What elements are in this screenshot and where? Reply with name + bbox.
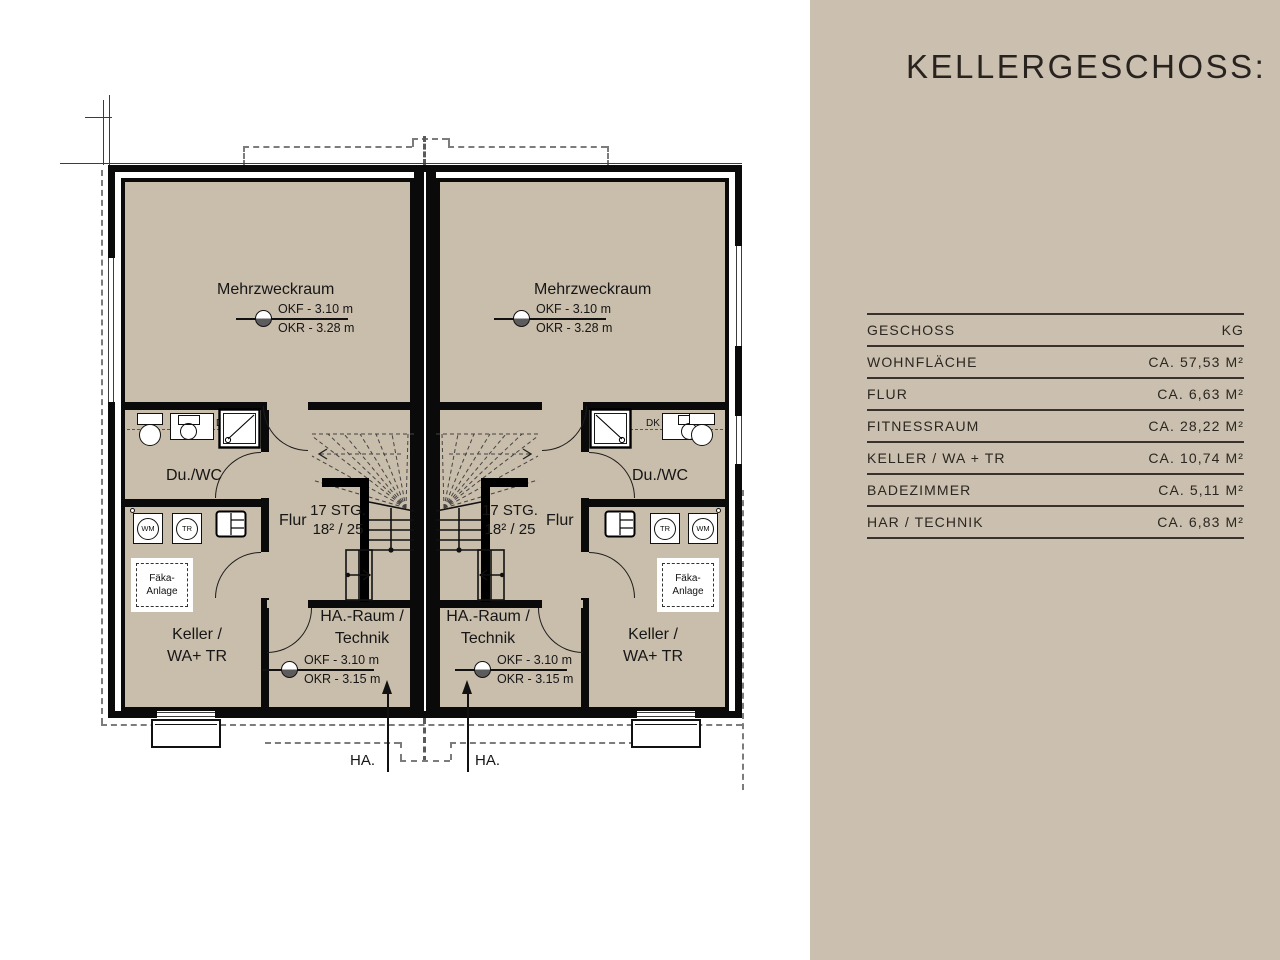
shower-icon-right [589,408,632,449]
sink-icon-left [170,413,214,440]
level-marker-lower-left: OKF - 3.10 m OKR - 3.15 m [262,652,382,692]
table-header-label: GESCHOSS [867,322,955,338]
stair-projection-notch-l [400,742,402,760]
label-haraum-right: HA.-Raum /Technik [428,606,548,649]
floor-plan: DK DK WM TR [0,0,810,960]
label-duwc-right: Du./WC [632,466,688,486]
table-header-row: GESCHOSS KG [867,315,1244,347]
level-marker-lower-right: OKF - 3.10 m OKR - 3.15 m [455,652,575,692]
stair-projection-notch-base [400,760,450,762]
dk-label-right: DK [646,418,660,431]
ha-label-right: HA. [475,752,500,771]
degree-mark-left [130,508,135,513]
table-row: HAR / TECHNIK CA. 6,83 M² [867,507,1244,539]
downpipe-mark-a [103,100,104,165]
level-marker-icon [255,310,272,327]
label-flur-right: Flur [546,511,574,531]
reference-line-top [60,163,742,164]
overhang-dashed-top-b [448,146,607,148]
toilet-bowl-right [691,424,713,446]
label-haraum-left: HA.-Raum /Technik [302,606,422,649]
overhang-notch-right [448,138,450,147]
overhang-notch-left [412,138,414,147]
table-row: BADEZIMMER CA. 5,11 M² [867,475,1244,507]
ha-arrow-line-right [467,690,469,772]
label-mehrzweckraum-right: Mehrzweckraum [534,280,651,300]
shaft-grid-icon-left [215,510,247,538]
table-row: FLUR CA. 6,63 M² [867,379,1244,411]
page-title: KELLERGESCHOSS: [906,48,1266,86]
degree-mark-right [716,508,721,513]
light-well-left [151,719,221,748]
table-header-value: KG [1222,322,1244,338]
label-stairs-left: 17 STG.18² / 25 [306,502,370,540]
ha-label-left: HA. [350,752,375,771]
shaft-grid-icon-right [604,510,636,538]
label-flur-left: Flur [279,511,307,531]
washing-machine-icon-right: WM [688,513,718,544]
stair-projection-dashed-a [265,742,400,744]
ha-arrowhead-left [382,680,392,694]
section-line-right-dashed [742,490,744,790]
overhang-dashed-top-a [243,146,412,148]
level-marker-upper-left: OKF - 3.10 m OKR - 3.28 m [236,301,356,341]
ha-arrowhead-right [462,680,472,694]
shower-icon-left [218,408,261,449]
toilet-bowl-left [139,424,161,446]
label-stairs-right: 17 STG.18² / 25 [478,502,542,540]
table-row: FITNESSRAUM CA. 28,22 M² [867,411,1244,443]
dryer-icon-right: TR [650,513,680,544]
level-marker-icon [474,661,491,678]
faeka-anlage-left: Fäka-Anlage [131,558,193,612]
stair-projection-dashed-b [450,742,635,744]
downpipe-tick [85,117,112,118]
stair-projection-notch-r [450,742,452,760]
table-row: WOHNFLÄCHE CA. 57,53 M² [867,347,1244,379]
area-table: GESCHOSS KG WOHNFLÄCHE CA. 57,53 M² FLUR… [867,313,1244,539]
party-wall-axis-top [423,136,426,165]
overhang-dashed-top-notch [412,138,448,140]
level-marker-upper-right: OKF - 3.10 m OKR - 3.28 m [494,301,614,341]
site-boundary-left-dashed [101,170,103,724]
party-wall-axis-bottom [423,718,426,762]
washing-machine-icon-left: WM [133,513,163,544]
label-mehrzweckraum-left: Mehrzweckraum [217,280,334,300]
info-panel: KELLERGESCHOSS: GESCHOSS KG WOHNFLÄCHE C… [810,0,1280,960]
label-duwc-left: Du./WC [166,466,222,486]
table-row: KELLER / WA + TR CA. 10,74 M² [867,443,1244,475]
label-keller-left: Keller /WA+ TR [137,624,257,667]
dryer-icon-left: TR [172,513,202,544]
level-marker-icon [281,661,298,678]
label-keller-right: Keller /WA+ TR [593,624,713,667]
downpipe-mark-b [109,95,110,165]
ha-arrow-line-left [387,690,389,772]
page: DK DK WM TR [0,0,1280,960]
light-well-right [631,719,701,748]
faeka-anlage-right: Fäka-Anlage [657,558,719,612]
level-marker-icon [513,310,530,327]
